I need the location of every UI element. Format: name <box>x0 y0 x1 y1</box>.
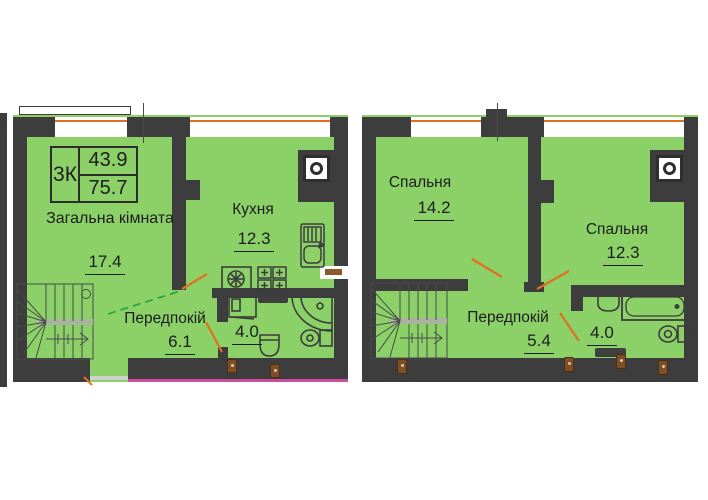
wall-segment <box>218 347 228 358</box>
stove-icon <box>256 266 288 293</box>
socket-icon <box>616 354 626 369</box>
staircase-icon <box>370 282 448 359</box>
wall-segment <box>186 180 200 200</box>
wall-segment <box>541 180 554 203</box>
staircase-icon <box>16 283 94 360</box>
cooker-hood-icon <box>221 266 252 293</box>
unit-type: 3К <box>52 148 80 201</box>
window-icon <box>55 119 127 123</box>
wall-segment <box>528 137 541 284</box>
room-label-hallway-2: Передпокій <box>448 308 568 328</box>
room-area-hallway-2: 5.4 <box>509 330 569 354</box>
kitchen-sink-icon <box>300 223 326 268</box>
niche-door-icon <box>325 269 342 275</box>
wall-segment <box>362 358 698 382</box>
wash-basin-icon <box>299 328 333 348</box>
porch-edge-line <box>128 379 348 382</box>
ventilation-shaft-icon <box>303 155 330 182</box>
socket-icon <box>227 359 237 373</box>
socket-icon <box>397 359 407 374</box>
threshold <box>90 376 128 380</box>
room-area-living: 17.4 <box>75 251 135 275</box>
unit-total-area: 75.7 <box>80 176 136 202</box>
wall-segment <box>0 113 7 387</box>
balcony-ledge <box>19 106 131 115</box>
room-label-bedroom-2: Спальня <box>567 220 667 240</box>
room-area-bedroom-2: 12.3 <box>593 242 653 266</box>
washing-machine-icon <box>228 293 257 320</box>
room-area-bathroom: 4.0 <box>219 321 275 345</box>
section-marker-line <box>143 103 144 143</box>
wash-basin-icon <box>596 291 621 313</box>
window-icon <box>411 119 481 123</box>
socket-icon <box>658 360 668 375</box>
room-label-living: Загальна кімната <box>45 209 175 230</box>
wall-segment <box>334 117 348 382</box>
window-icon <box>190 119 330 123</box>
bathtub-icon <box>621 292 689 321</box>
room-label-bedroom-1: Спальня <box>370 173 470 193</box>
room-label-kitchen: Кухня <box>213 200 293 220</box>
floorplan-canvas: 3К 43.9 75.7 Загальна кімната 17.4 Кухня… <box>0 0 708 500</box>
room-area-hallway: 6.1 <box>152 331 208 355</box>
socket-icon <box>270 364 280 378</box>
room-area-bedroom-1: 14.2 <box>404 197 464 221</box>
unit-living-area: 43.9 <box>80 148 136 176</box>
toilet-icon <box>657 324 690 344</box>
room-area-kitchen: 12.3 <box>224 228 284 252</box>
wall-segment <box>524 282 544 292</box>
wall-segment <box>571 285 583 311</box>
section-marker-line <box>497 103 498 141</box>
ventilation-shaft-icon <box>656 155 683 182</box>
window-icon <box>544 119 686 123</box>
room-label-hallway: Передпокій <box>105 309 225 329</box>
socket-icon <box>564 357 574 372</box>
unit-info-box: 3К 43.9 75.7 <box>50 146 138 203</box>
room-area-bathroom-2: 4.0 <box>574 322 630 346</box>
radiator-icon <box>258 295 288 303</box>
shower-cabin-icon <box>290 293 334 333</box>
